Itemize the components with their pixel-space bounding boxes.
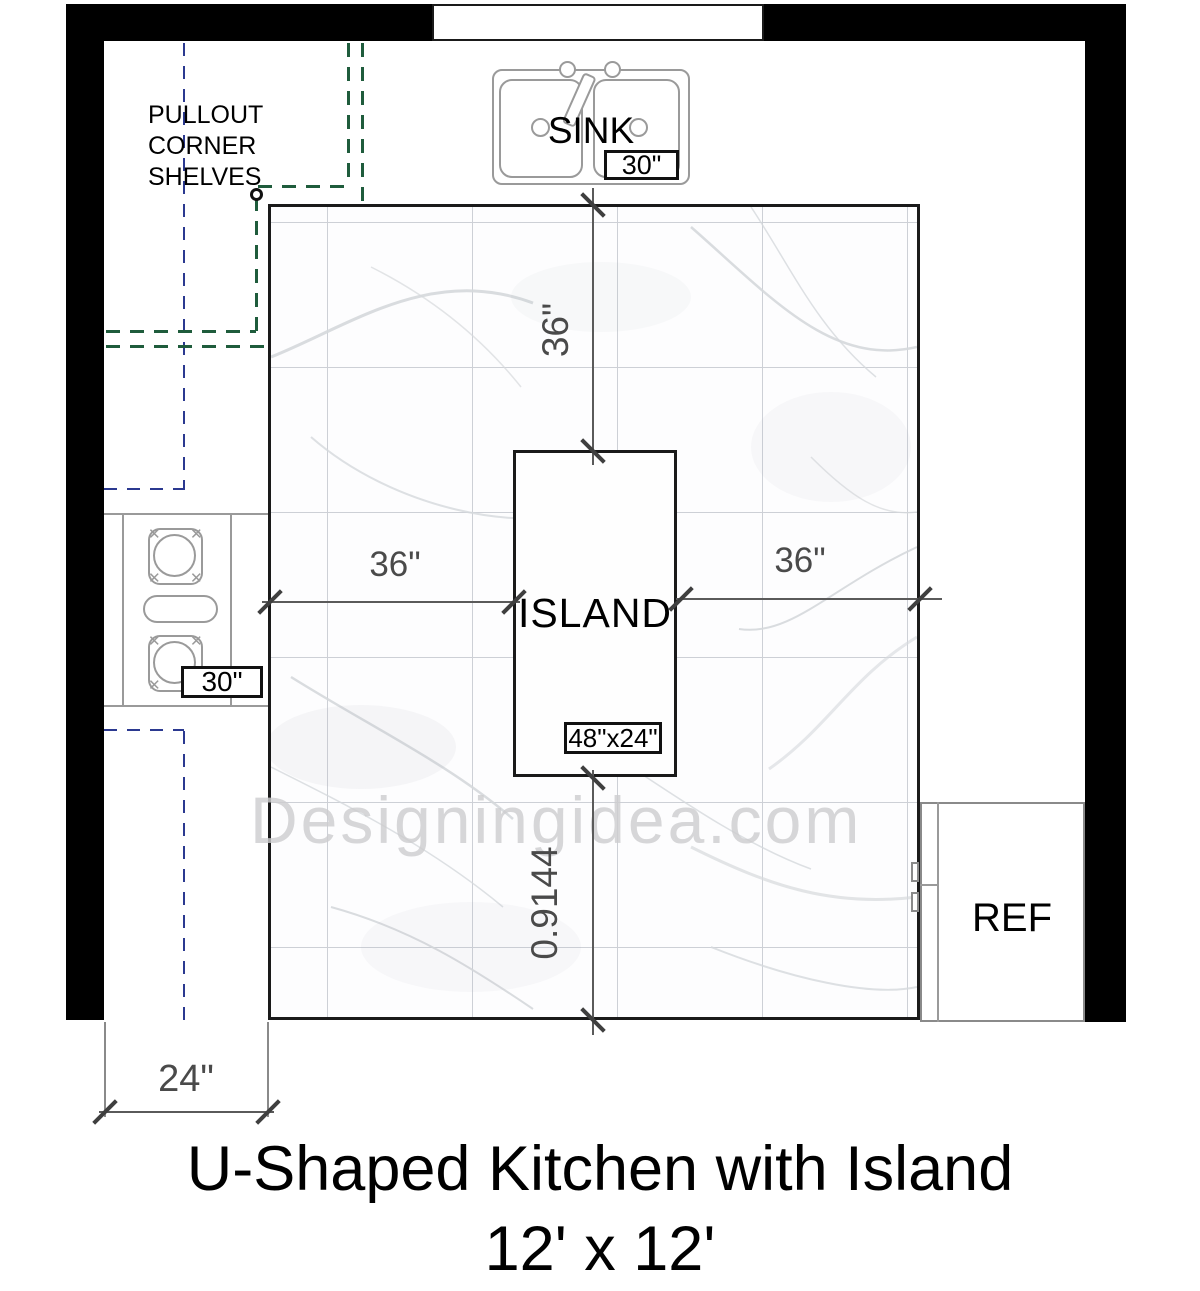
pullout-shelf-dashed-line (361, 43, 364, 204)
burner-grate-mark: ✕ (190, 527, 203, 542)
burner-grate-mark: ✕ (190, 571, 203, 586)
burner-grate-mark: ✕ (148, 678, 161, 693)
pullout-shelf-dashed-line (255, 197, 258, 332)
kitchen-floor-plan: Designingidea.com PULLOUT CORNER SHELVES… (0, 0, 1200, 1291)
upper-cabinet-dashed-line (104, 488, 184, 490)
island-label: ISLAND (513, 590, 677, 637)
dimension-line (592, 770, 594, 1035)
faucet-knob-right (604, 61, 621, 78)
counter-line (104, 705, 268, 707)
refrigerator-door-split (920, 884, 939, 886)
pullout-corner-shelves-label: PULLOUT CORNER SHELVES (148, 100, 263, 193)
stove-center-panel (143, 595, 218, 623)
pullout-shelf-dashed-line (258, 185, 348, 188)
plan-size: 12' x 12' (0, 1213, 1200, 1285)
sink-label: SINK (492, 110, 690, 152)
left-wall (66, 4, 104, 1020)
plan-title: U-Shaped Kitchen with Island (0, 1133, 1200, 1205)
island-dimension-box: 48"x24" (564, 722, 662, 754)
upper-cabinet-dashed-line (183, 731, 185, 1020)
pullout-shelf-dashed-line (106, 345, 268, 348)
burner-grate-mark: ✕ (190, 634, 203, 649)
dimension-line (262, 601, 520, 603)
dimension-label-island-bottom: 0.9144 (524, 823, 566, 983)
burner-grate-mark: ✕ (148, 571, 161, 586)
dimension-line (592, 188, 594, 465)
dimension-label-island-right: 36" (735, 541, 865, 581)
ref-label: REF (939, 896, 1085, 941)
right-wall (1085, 4, 1126, 1022)
dimension-line (99, 1111, 274, 1113)
extension-line (104, 1022, 106, 1117)
refrigerator-handle (911, 862, 919, 882)
upper-cabinet-dashed-line (104, 729, 184, 731)
faucet-knob-left (559, 61, 576, 78)
refrigerator-door (920, 802, 939, 1022)
pullout-shelf-dashed-line (347, 43, 350, 187)
dimension-label-sink-island: 36" (535, 260, 577, 400)
refrigerator-handle (911, 892, 919, 912)
stove-dimension-box: 30" (181, 666, 263, 698)
stove-burner-top: ✕ ✕ ✕ ✕ (148, 528, 203, 585)
sink-dimension-box: 30" (604, 150, 679, 180)
burner-grate-mark: ✕ (148, 634, 161, 649)
dimension-line (676, 598, 942, 600)
dimension-label-counter-depth: 24" (121, 1058, 251, 1101)
burner-grate-mark: ✕ (148, 527, 161, 542)
dimension-label-left-island: 36" (330, 545, 460, 585)
window-opening (432, 4, 764, 41)
pullout-shelf-dashed-line (106, 330, 256, 333)
extension-line (267, 1022, 269, 1117)
